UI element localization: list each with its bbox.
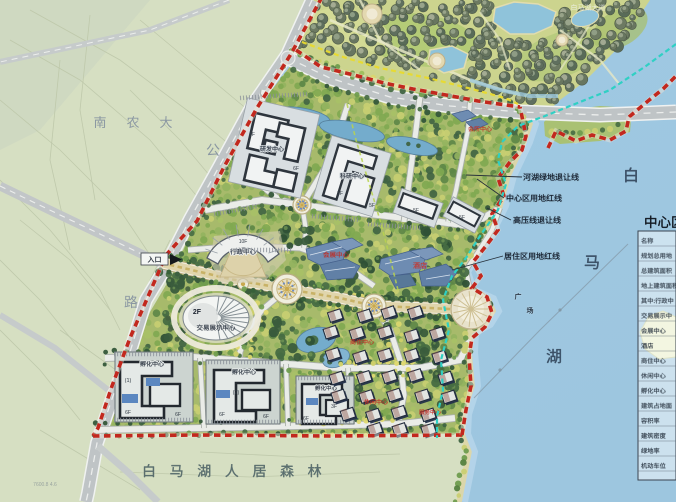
svg-text:2F: 2F (193, 309, 202, 316)
svg-text:5F: 5F (459, 215, 465, 221)
svg-text:10F: 10F (239, 239, 248, 245)
svg-text:6F: 6F (249, 132, 255, 138)
svg-text:4F: 4F (357, 364, 363, 369)
svg-text:(2): (2) (233, 390, 240, 396)
svg-text:6F: 6F (263, 414, 269, 420)
svg-text:4F: 4F (385, 318, 391, 323)
svg-text:6F: 6F (293, 166, 299, 172)
svg-text:5F: 5F (413, 208, 419, 214)
svg-text:6F: 6F (219, 412, 225, 418)
svg-text:3F: 3F (331, 404, 337, 410)
svg-text:7600.8 4.6: 7600.8 4.6 (33, 482, 57, 488)
svg-text:5F: 5F (337, 191, 343, 197)
svg-text:(1): (1) (125, 378, 132, 384)
svg-text:5F: 5F (369, 203, 375, 209)
svg-text:6F: 6F (175, 412, 181, 418)
svg-text:6F: 6F (125, 410, 131, 416)
